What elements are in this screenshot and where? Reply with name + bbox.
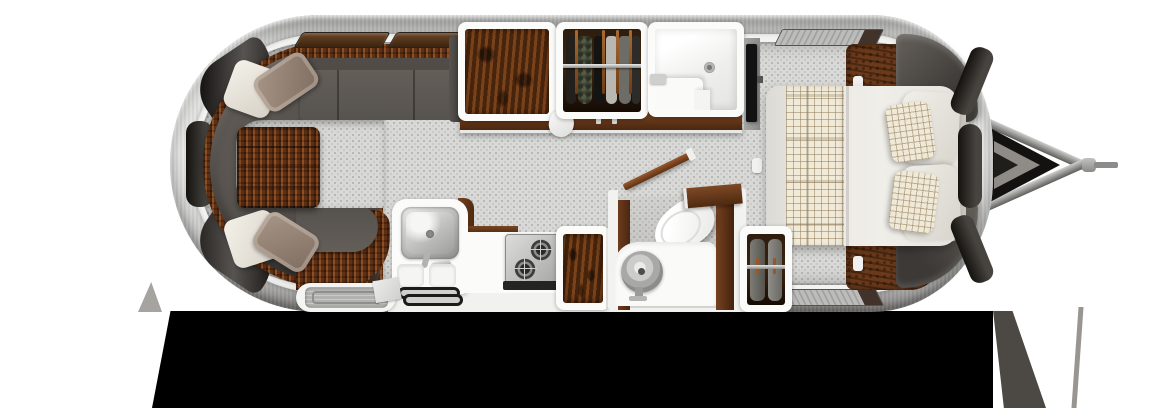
pantry-wood-top [563, 234, 603, 303]
shower-step [694, 90, 710, 110]
stove-burner [529, 238, 553, 262]
front-window-center [958, 124, 982, 208]
hanger [602, 30, 605, 94]
hanger [616, 30, 619, 94]
vanity-faucet-handle [629, 296, 647, 301]
hanging-garment [632, 36, 640, 104]
sofa-top-seats [300, 70, 460, 120]
floor-mat [403, 294, 463, 306]
nightstand-latch [853, 256, 863, 271]
closet-rod [563, 64, 641, 68]
refrigerator-wood-top [465, 29, 549, 114]
wall-latch [752, 158, 762, 173]
cutting-board [429, 264, 456, 287]
jack-shadow [1071, 307, 1083, 408]
wardrobe-interior [563, 29, 641, 112]
sink-drain [426, 230, 434, 238]
wicker-ottoman [237, 127, 320, 208]
plaid-bed-runner [786, 86, 844, 246]
seat-seam [337, 70, 339, 120]
bedding-fold-line [846, 86, 849, 246]
tv [746, 44, 757, 122]
bed-pillow-plaid-top [884, 100, 937, 164]
bed-pillow-plaid-bottom [888, 169, 941, 234]
vanity-sink-bowl [621, 251, 663, 293]
shower-pan [655, 29, 737, 110]
stove-burner [513, 257, 537, 281]
cutting-board [397, 264, 424, 287]
seat-seam [413, 70, 415, 120]
body-shadow-edge [138, 282, 162, 312]
hanging-garment [578, 36, 592, 104]
hanger [629, 30, 632, 94]
closet-rod [747, 265, 785, 269]
bathroom-wall-right-wood [716, 190, 736, 310]
shower-valve [650, 74, 666, 84]
shower-drain [704, 62, 715, 73]
door-mat [372, 277, 401, 303]
tv-mount-arm [757, 76, 763, 83]
entry-step-handle [312, 291, 381, 304]
trailer-drop-shadow [152, 311, 993, 408]
floorplan-canvas [0, 0, 1170, 408]
hitch-coupler [1094, 162, 1118, 168]
bedroom-wardrobe-interior [747, 234, 785, 305]
overhead-locker-left [293, 32, 390, 48]
hanger [575, 30, 578, 94]
hitch-shadow [992, 311, 1046, 408]
